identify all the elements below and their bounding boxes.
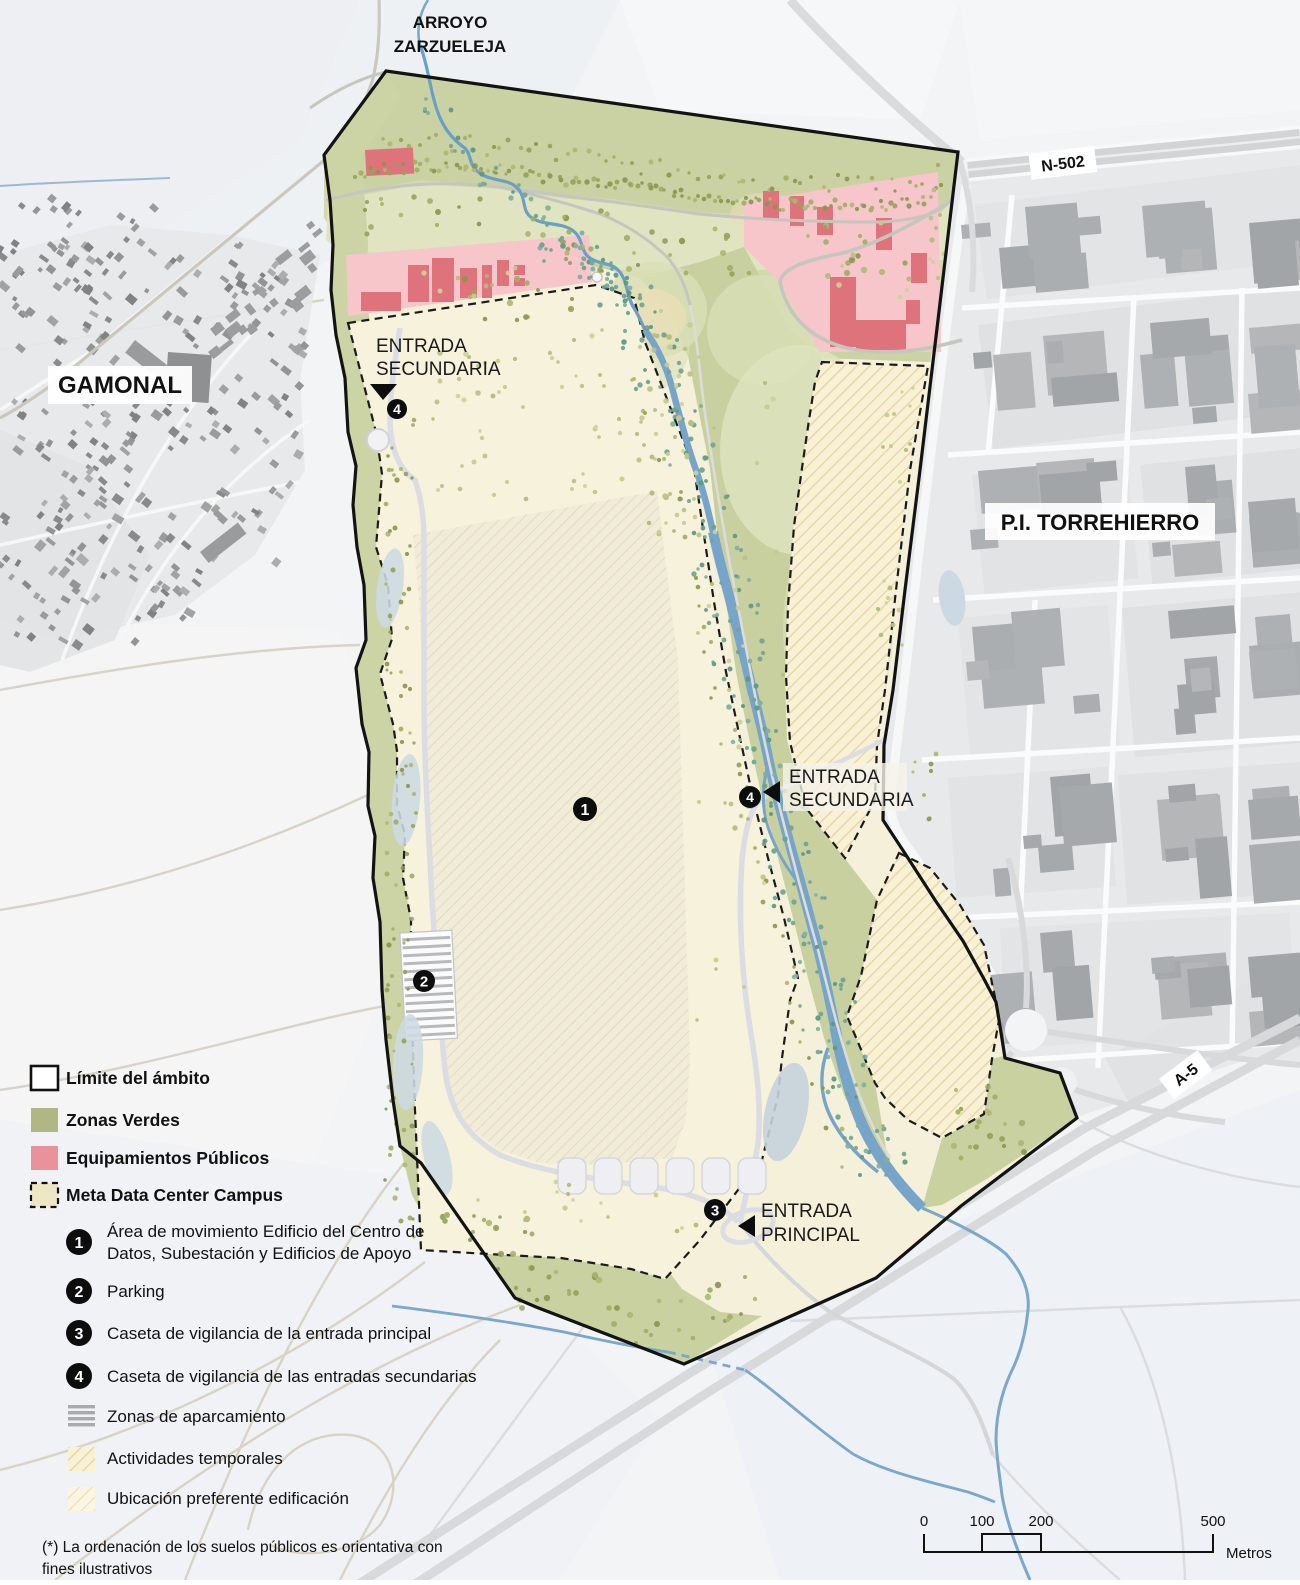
svg-text:200: 200 [1028, 1513, 1053, 1530]
svg-text:500: 500 [1200, 1513, 1225, 1530]
svg-text:4: 4 [746, 789, 754, 805]
svg-text:ARROYO: ARROYO [413, 13, 488, 32]
svg-text:1: 1 [581, 802, 590, 819]
svg-text:P.I. TORREHIERRO: P.I. TORREHIERRO [1001, 510, 1199, 535]
svg-text:3: 3 [75, 1326, 84, 1343]
svg-text:0: 0 [920, 1513, 928, 1530]
svg-text:2: 2 [75, 1284, 84, 1301]
svg-text:Ubicación preferente edificaci: Ubicación preferente edificación [107, 1489, 349, 1508]
svg-text:GAMONAL: GAMONAL [58, 372, 182, 399]
svg-text:ENTRADA: ENTRADA [761, 1201, 852, 1222]
svg-text:ZARZUELEJA: ZARZUELEJA [394, 37, 506, 56]
svg-text:Parking: Parking [107, 1282, 165, 1301]
svg-text:3: 3 [711, 1202, 719, 1219]
svg-text:Límite del ámbito: Límite del ámbito [66, 1068, 210, 1088]
svg-text:4: 4 [75, 1369, 84, 1386]
svg-text:ENTRADA: ENTRADA [376, 336, 467, 357]
svg-text:(*) La ordenación de los suelo: (*) La ordenación de los suelos públicos… [42, 1539, 443, 1556]
svg-text:Actividades temporales: Actividades temporales [107, 1449, 283, 1468]
svg-text:Meta Data Center Campus: Meta Data Center Campus [66, 1185, 283, 1205]
svg-text:ENTRADA: ENTRADA [789, 767, 880, 788]
svg-text:Zonas de aparcamiento: Zonas de aparcamiento [107, 1407, 286, 1426]
svg-text:Área de movimiento Edificio de: Área de movimiento Edificio del Centro d… [107, 1222, 425, 1241]
svg-text:Caseta de vigilancia de la ent: Caseta de vigilancia de la entrada princ… [107, 1324, 431, 1343]
svg-text:SECUNDARIA: SECUNDARIA [789, 790, 914, 811]
svg-text:Datos, Subestación y Edificios: Datos, Subestación y Edificios de Apoyo [107, 1244, 411, 1263]
svg-text:2: 2 [420, 973, 428, 990]
svg-text:Caseta de vigilancia de las en: Caseta de vigilancia de las entradas sec… [107, 1367, 477, 1386]
svg-text:100: 100 [969, 1513, 994, 1530]
svg-text:1: 1 [75, 1235, 84, 1252]
svg-text:PRINCIPAL: PRINCIPAL [761, 1225, 860, 1246]
svg-text:Metros: Metros [1226, 1545, 1272, 1562]
svg-text:Equipamientos Públicos: Equipamientos Públicos [66, 1148, 269, 1168]
svg-text:fines ilustrativos: fines ilustrativos [42, 1561, 153, 1578]
svg-text:4: 4 [393, 401, 401, 417]
svg-text:SECUNDARIA: SECUNDARIA [376, 359, 501, 380]
svg-text:Zonas Verdes: Zonas Verdes [66, 1110, 180, 1130]
